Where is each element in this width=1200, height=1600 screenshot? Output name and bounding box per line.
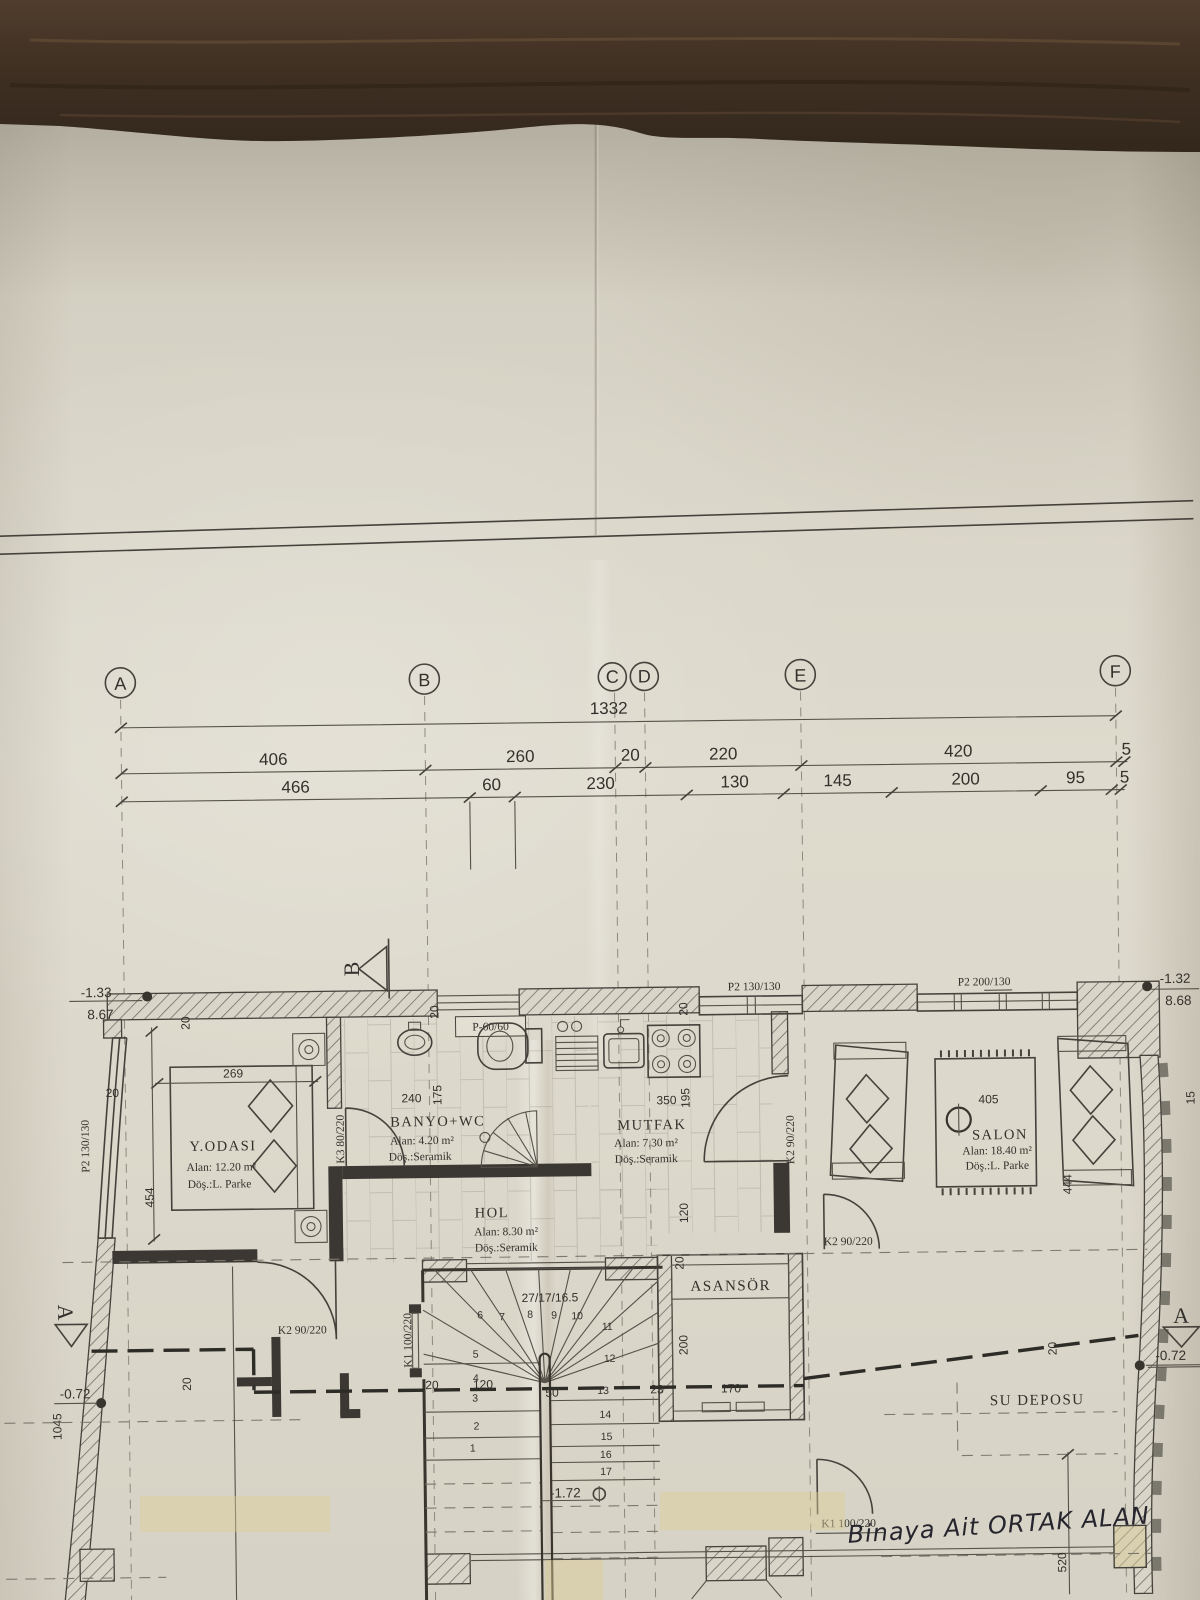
stair-spec: 27/17/16.5	[521, 1290, 578, 1305]
room-label-sudeposu: SU DEPOSU	[990, 1392, 1085, 1409]
dim-bedroom-wall: 20	[106, 1086, 120, 1100]
dim-5b: 5	[1120, 768, 1130, 787]
stair-num-7: 7	[499, 1311, 505, 1323]
dim-230: 230	[586, 774, 615, 793]
stair-num-6: 6	[477, 1309, 483, 1321]
room-label-salon: SALON	[972, 1127, 1028, 1144]
dim-mutfak-w: 350	[656, 1093, 677, 1107]
dim-bedroom-w: 269	[223, 1066, 244, 1080]
door-label-k2-salon: K2 90/220	[824, 1236, 873, 1249]
room-floor-salon: Döş.:L. Parke	[965, 1160, 1029, 1173]
stair-num-12: 12	[604, 1353, 616, 1365]
door-label-k3: K3 80/220	[335, 1114, 348, 1163]
dim-stair-b: 120	[473, 1377, 494, 1391]
dim-95: 95	[1066, 768, 1085, 787]
stair-num-2: 2	[473, 1420, 479, 1432]
dim-200: 200	[951, 769, 980, 788]
grid-axis-b: B	[418, 670, 430, 690]
window-label-p2-salon: P2 200/130	[958, 976, 1011, 989]
dim-corridor-wall: 20	[672, 1256, 686, 1270]
handwritten-note: Binaya Ait ORTAK ALAN	[847, 1501, 1151, 1548]
dim-right-wall: 20	[1045, 1341, 1059, 1355]
room-label-banyo: BANYO+WC	[390, 1113, 485, 1130]
dim-5a: 5	[1121, 739, 1131, 758]
sheet-border-lines	[0, 501, 1194, 555]
grid-axis-e: E	[794, 665, 806, 685]
door-label-k1-stair: K1 100/220	[402, 1313, 415, 1368]
staircase: 27/17/16.5 1 2 3 4 5 6 7 8 9 10 11 12 13…	[423, 1267, 662, 1600]
dim-220: 220	[709, 744, 738, 763]
dim-total: 1332	[590, 699, 628, 718]
dim-20cd: 20	[621, 745, 640, 764]
room-area-hol: Alan: 8.30 m²	[474, 1226, 539, 1239]
room-floor-hol: Döş.:Seramik	[475, 1242, 538, 1255]
elev-left: -0.72	[60, 1386, 91, 1401]
dimension-chains: 1332 406 260 20 220 420 5 466 60 230 130…	[115, 692, 1133, 873]
door-label-k2-kitchen: K2 90/220	[785, 1115, 798, 1164]
room-area-salon: Alan: 18.40 m²	[962, 1145, 1032, 1158]
dim-60: 60	[482, 775, 501, 794]
grid-axis-a: A	[114, 674, 126, 694]
room-label-mutfak: MUTFAK	[617, 1117, 686, 1134]
stair-num-3: 3	[472, 1393, 478, 1405]
dim-asansor-gap: 23	[650, 1382, 664, 1396]
dim-left-wall: 20	[180, 1377, 194, 1391]
stair-num-9: 9	[551, 1310, 557, 1322]
dim-260: 260	[506, 747, 535, 766]
wood-table-background	[0, 0, 1200, 152]
room-floor-banyo: Döş.:Seramik	[389, 1151, 452, 1164]
elev-tl-plus: 8.67	[87, 1007, 113, 1022]
grid-axis-c: C	[606, 667, 619, 687]
grid-axis-d: D	[638, 666, 651, 686]
stair-num-17: 17	[600, 1466, 612, 1478]
dim-banyo-h: 175	[430, 1085, 444, 1106]
stair-num-15: 15	[601, 1431, 613, 1443]
dim-bedroom-top: 20	[178, 1016, 192, 1030]
dim-asansor-w: 170	[721, 1381, 742, 1395]
room-area-banyo: Alan: 4.20 m²	[390, 1135, 455, 1148]
room-floor-mutfak: Döş.:Seramik	[615, 1153, 678, 1166]
dim-banyo-top: 20	[427, 1005, 441, 1019]
elev-stair: -1.72	[550, 1485, 581, 1500]
room-label-asansor: ASANSÖR	[690, 1277, 771, 1295]
dim-left-v: 1045	[50, 1413, 64, 1440]
stair-num-11: 11	[602, 1321, 613, 1333]
photo-of-floor-plan: A B C D E F 1332 406 260 20 220	[0, 0, 1200, 1600]
window-label-p2-left: P2 130/130	[80, 1120, 93, 1173]
dim-420: 420	[944, 741, 973, 760]
dim-466: 466	[281, 778, 310, 797]
section-a-left-label: A	[53, 1304, 78, 1320]
stair-num-1: 1	[470, 1443, 476, 1455]
room-label-yodasi: Y.ODASI	[189, 1138, 256, 1155]
dim-salon-wall: 15	[1183, 1091, 1197, 1105]
room-floor-yodasi: Döş.:L. Parke	[188, 1178, 252, 1191]
dim-salon-w: 405	[978, 1092, 999, 1106]
dim-salon-h: 444	[1060, 1174, 1074, 1195]
dim-mutfak-h: 195	[678, 1088, 692, 1109]
stair-num-5: 5	[473, 1349, 479, 1361]
dim-406: 406	[259, 750, 288, 769]
window-label-p2-kitchen: P2 130/130	[728, 981, 781, 994]
elev-tr-minus: -1.32	[1160, 971, 1191, 986]
elev-tl-minus: -1.33	[81, 985, 112, 1000]
dim-asansor-h: 200	[676, 1335, 690, 1356]
room-area-mutfak: Alan: 7.30 m²	[614, 1137, 679, 1150]
dim-su-v: 520	[1055, 1552, 1069, 1573]
dim-corridor: 120	[677, 1203, 691, 1224]
stair-num-10: 10	[571, 1310, 583, 1322]
elev-right: -0.72	[1155, 1348, 1186, 1363]
grid-axis-f: F	[1110, 662, 1121, 682]
dim-bedroom-h: 454	[143, 1187, 157, 1208]
elev-tr-plus: 8.68	[1165, 993, 1191, 1008]
stair-num-8: 8	[527, 1309, 533, 1321]
stair-num-14: 14	[599, 1409, 611, 1421]
door-label-k2-bedroom: K2 90/220	[278, 1324, 327, 1337]
room-area-yodasi: Alan: 12.20 m²	[186, 1161, 256, 1174]
floor-plan-drawing: A B C D E F 1332 406 260 20 220	[0, 0, 1200, 1600]
dim-stair-c: 50	[545, 1386, 559, 1400]
stair-num-16: 16	[600, 1449, 612, 1461]
dim-130: 130	[720, 772, 749, 791]
dim-145: 145	[823, 771, 852, 790]
section-a-right-label: A	[1173, 1303, 1189, 1328]
dim-mutfak-top: 20	[676, 1002, 690, 1016]
room-label-hol: HOL	[475, 1205, 510, 1221]
dim-stair-a: 20	[425, 1378, 439, 1392]
dim-banyo-w: 240	[401, 1091, 422, 1105]
